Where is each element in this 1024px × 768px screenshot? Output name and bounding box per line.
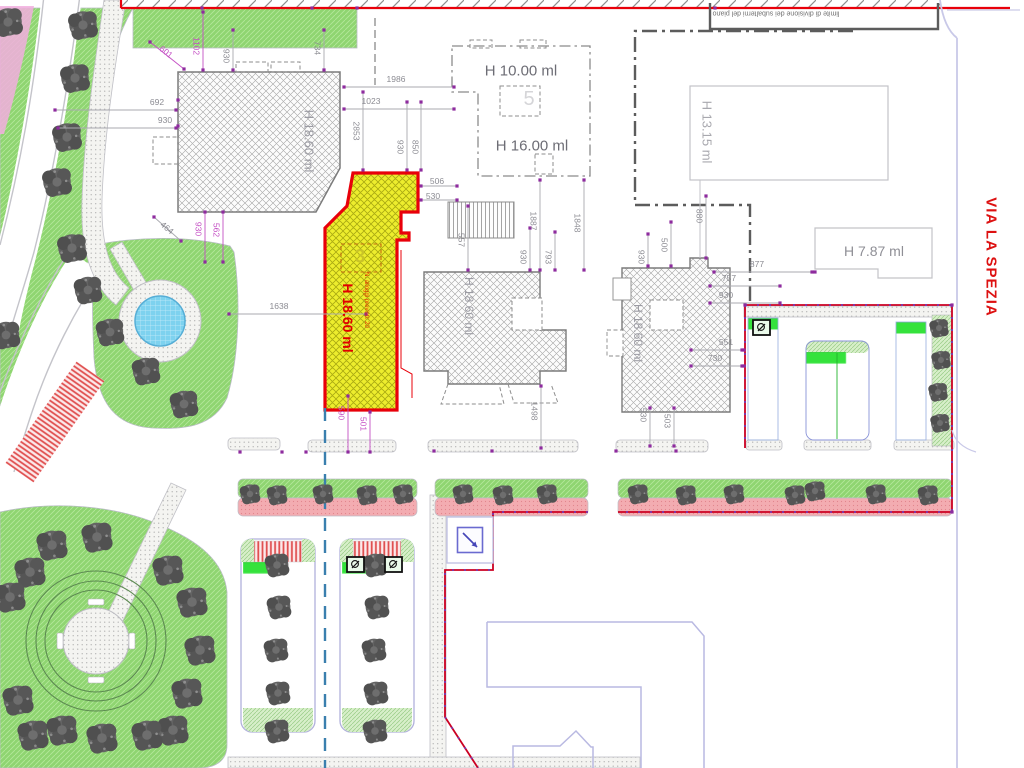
survey-point-dot: [346, 394, 349, 397]
future-buildings-outline: [487, 622, 704, 768]
tree-icon: [74, 277, 103, 305]
tree-icon: [265, 554, 290, 578]
tree-icon: [537, 484, 558, 504]
tree-icon: [96, 319, 125, 347]
survey-point-dot: [419, 184, 422, 187]
new-building-highlighted: [325, 173, 418, 410]
survey-point-dot: [466, 204, 469, 207]
tree-icon: [131, 721, 162, 751]
survey-point-dot: [490, 449, 493, 452]
survey-point-dot: [455, 198, 458, 201]
tree-icon: [0, 8, 23, 37]
survey-point-dot: [689, 364, 692, 367]
survey-point-dot: [280, 450, 283, 453]
survey-point-dot: [778, 284, 781, 287]
survey-point-dot: [231, 28, 234, 31]
survey-point-dot: [419, 168, 422, 171]
survey-point-dot: [231, 68, 234, 71]
bench: [88, 599, 104, 605]
survey-point-dot: [148, 40, 151, 43]
survey-point-dot: [322, 68, 325, 71]
survey-point-dot: [582, 178, 585, 181]
survey-point-dot: [648, 406, 651, 409]
pond: [119, 280, 201, 362]
tree-icon: [57, 234, 87, 263]
survey-point-dot: [176, 98, 179, 101]
bench: [129, 633, 135, 649]
building-h787: [815, 228, 932, 278]
survey-point-dot: [539, 384, 542, 387]
survey-point-dot: [201, 68, 204, 71]
survey-point-dot: [614, 449, 617, 452]
tree-icon: [929, 319, 949, 338]
tree-icon: [2, 686, 33, 716]
building-h10-h16: [452, 46, 590, 176]
survey-point-dot: [648, 444, 651, 447]
tree-icon: [176, 588, 207, 618]
tree-icon: [363, 720, 388, 744]
survey-point-dot: [346, 450, 349, 453]
survey-point-dot: [368, 450, 371, 453]
tree-icon: [152, 556, 183, 586]
survey-point-dot: [810, 270, 813, 273]
parking-stalls: [748, 318, 778, 440]
survey-point-dot: [201, 10, 204, 13]
survey-point-dot: [538, 268, 541, 271]
tree-icon: [170, 391, 199, 419]
tree-icon: [918, 485, 939, 505]
survey-point-dot: [221, 260, 224, 263]
survey-point-dot: [56, 126, 59, 129]
survey-point-dot: [361, 168, 364, 171]
survey-point-dot: [310, 6, 313, 9]
survey-point-dot: [452, 107, 455, 110]
tree-icon: [265, 720, 290, 744]
survey-point-dot: [813, 270, 816, 273]
survey-point-dot: [455, 184, 458, 187]
survey-point-dot: [179, 239, 182, 242]
survey-point-dot: [539, 446, 542, 449]
tree-icon: [0, 322, 20, 350]
tree-icon: [60, 64, 90, 93]
survey-point-dot: [419, 198, 422, 201]
survey-point-dot: [152, 215, 155, 218]
survey-point-dot: [176, 124, 179, 127]
survey-point-dot: [432, 449, 435, 452]
survey-point-dot: [712, 270, 715, 273]
parking-sign-icon: [385, 557, 402, 572]
survey-point-dot: [322, 28, 325, 31]
tree-icon: [364, 682, 389, 706]
survey-point-dot: [950, 510, 953, 513]
tree-icon: [313, 484, 334, 504]
survey-point-dot: [742, 364, 745, 367]
parking-stalls: [896, 322, 926, 440]
tree-icon: [0, 583, 26, 613]
tree-icon: [240, 484, 261, 504]
survey-point-dot: [553, 230, 556, 233]
tree-icon: [363, 554, 388, 578]
survey-point-dot: [203, 260, 206, 263]
survey-point-dot: [669, 264, 672, 267]
tree-icon: [931, 351, 951, 370]
tree-icon: [676, 485, 697, 505]
survey-point-dot: [689, 348, 692, 351]
survey-point-dot: [646, 264, 649, 267]
tree-icon: [264, 639, 289, 663]
tree-icon: [866, 484, 887, 504]
survey-point-dot: [704, 194, 707, 197]
tree-icon: [493, 485, 514, 505]
tree-icon: [267, 485, 288, 505]
survey-point-dot: [778, 301, 781, 304]
tree-icon: [46, 716, 77, 746]
tree-icon: [453, 484, 474, 504]
tree-icon: [17, 721, 48, 751]
survey-point-dot: [419, 100, 422, 103]
survey-point-dot: [342, 85, 345, 88]
survey-point-dot: [553, 268, 556, 271]
survey-point-dot: [674, 449, 677, 452]
tree-icon: [36, 531, 67, 561]
tree-icon: [86, 724, 117, 754]
survey-point-dot: [238, 450, 241, 453]
survey-point-dot: [405, 168, 408, 171]
survey-point-dot: [304, 450, 307, 453]
survey-point-dot: [221, 210, 224, 213]
tree-icon: [68, 11, 98, 40]
canopy-structure: [448, 202, 514, 238]
survey-point-dot: [361, 90, 364, 93]
survey-point-dot: [672, 406, 675, 409]
survey-point-dot: [582, 268, 585, 271]
tree-icon: [724, 484, 745, 504]
parking-stalls: [806, 352, 869, 440]
tree-icon: [81, 523, 112, 553]
tree-avenue: [238, 479, 952, 516]
building-nw: [178, 72, 340, 212]
survey-point-dot: [182, 67, 185, 70]
survey-point-dot: [672, 444, 675, 447]
survey-point-dot: [53, 108, 56, 111]
survey-point-dot: [538, 178, 541, 181]
survey-point-dot: [708, 284, 711, 287]
survey-point-dot: [200, 6, 203, 9]
building-center: [424, 272, 566, 384]
survey-point-dot: [708, 301, 711, 304]
survey-point-dot: [528, 268, 531, 271]
transformer-cabin-icon: [447, 517, 493, 563]
tree-icon: [357, 485, 378, 505]
survey-point-dot: [742, 348, 745, 351]
survey-point-dot: [227, 312, 230, 315]
building-east: [622, 258, 730, 412]
tree-icon: [393, 484, 414, 504]
survey-point-dot: [704, 256, 707, 259]
survey-point-dot: [203, 210, 206, 213]
site-plan-drawing: [0, 0, 1024, 768]
right-parking-area: [748, 315, 952, 446]
tree-icon: [362, 639, 387, 663]
survey-point-dot: [364, 312, 367, 315]
survey-point-dot: [368, 410, 371, 413]
top-boundary-strip: [120, 0, 1010, 9]
bench: [88, 677, 104, 683]
tree-icon: [928, 383, 948, 402]
survey-point-dot: [174, 108, 177, 111]
building-h1315: [690, 86, 888, 180]
bench: [57, 633, 63, 649]
parking-sign-icon: [347, 557, 364, 572]
survey-point-dot: [466, 268, 469, 271]
tree-icon: [365, 596, 390, 620]
tree-icon: [805, 481, 826, 501]
survey-point-dot: [355, 6, 358, 9]
parking-sign-icon: [753, 320, 770, 335]
survey-point-dot: [950, 303, 953, 306]
survey-point-dot: [713, 6, 716, 9]
survey-point-dot: [452, 85, 455, 88]
survey-point-dot: [405, 100, 408, 103]
tree-icon: [266, 682, 291, 706]
tree-icon: [785, 485, 806, 505]
survey-point-dot: [669, 220, 672, 223]
survey-point-dot: [646, 232, 649, 235]
tree-icon: [132, 358, 161, 386]
survey-point-dot: [528, 226, 531, 229]
tree-icon: [628, 484, 649, 504]
site-plan: H 18.60 mlH 10.00 mlH 16.00 mlH 13.15 ml…: [0, 0, 1024, 768]
tree-icon: [267, 596, 292, 620]
tree-icon: [184, 636, 215, 666]
survey-point-dot: [743, 303, 746, 306]
tree-icon: [930, 414, 950, 433]
survey-point-dot: [342, 107, 345, 110]
tree-icon: [42, 168, 72, 197]
tree-icon: [171, 679, 202, 709]
dimension-line: [154, 217, 181, 241]
